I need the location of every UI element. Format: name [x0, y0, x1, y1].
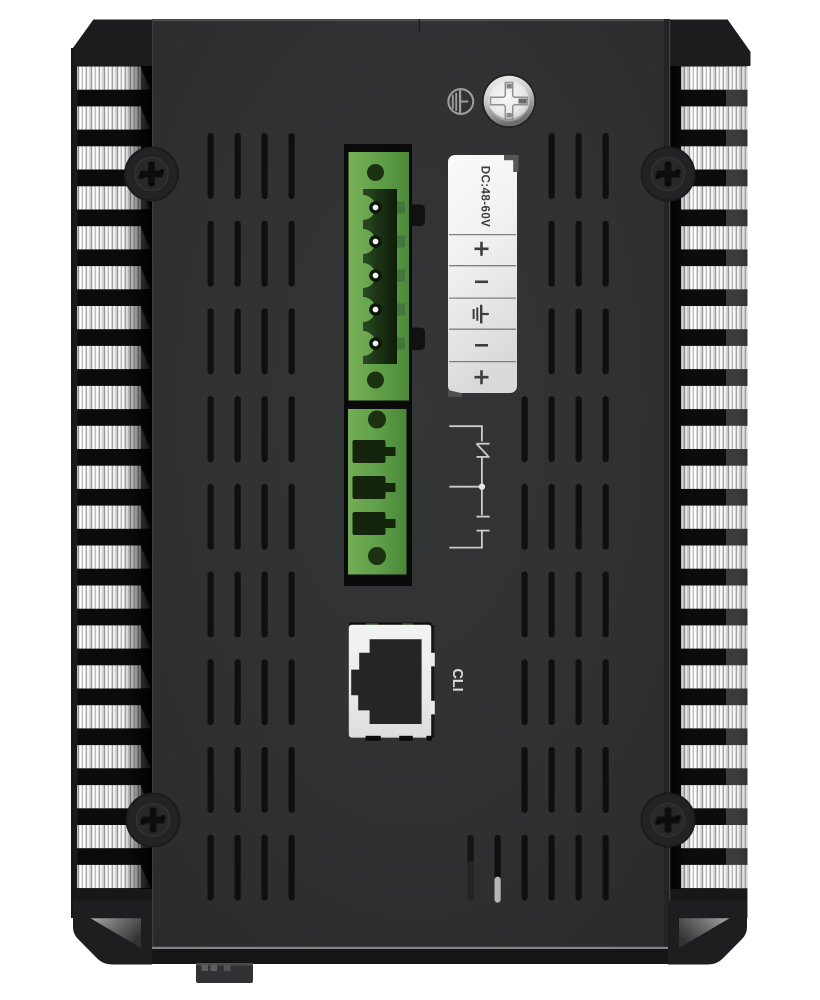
svg-text:DC:48-60V: DC:48-60V — [479, 166, 492, 228]
svg-text:CLI: CLI — [449, 668, 465, 691]
